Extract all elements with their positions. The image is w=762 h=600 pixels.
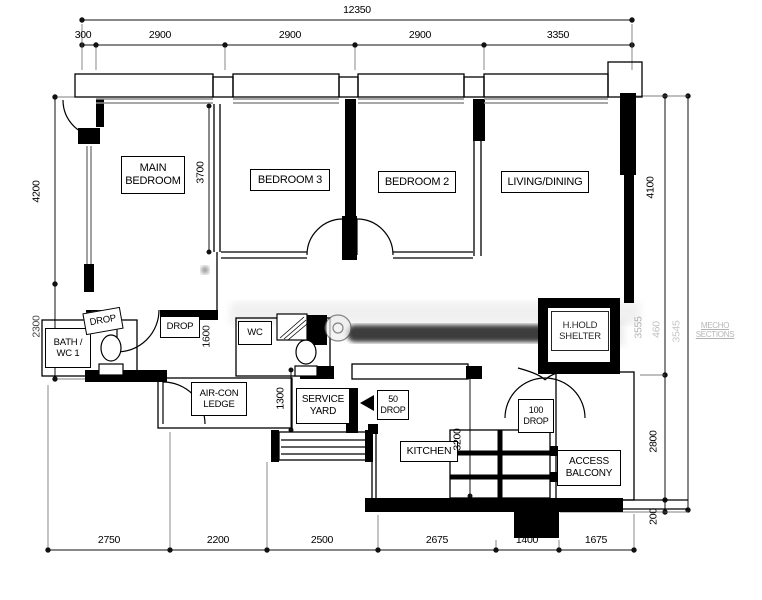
annotation-drop-hall: DROP	[160, 316, 200, 338]
dim-top-total: 12350	[335, 5, 379, 17]
room-label-aircon-ledge: AIR-CON LEDGE	[191, 382, 247, 416]
annotation-drop-shelter: 100 DROP	[518, 399, 554, 433]
washing-machine	[325, 315, 351, 341]
drop-arrow	[360, 395, 374, 411]
toilet-bath-wc1	[101, 335, 121, 361]
watermark-faded-460: 460	[652, 308, 665, 352]
room-label-bedroom3: BEDROOM 3	[250, 169, 330, 191]
floor-plan: MAIN BEDROOM BEDROOM 3 BEDROOM 2 LIVING/…	[0, 0, 762, 600]
dim-left-2300: 2300	[32, 305, 45, 349]
room-label-service-yard: SERVICE YARD	[296, 388, 350, 424]
dim-bottom-1400: 1400	[505, 535, 549, 547]
dim-interior-3200: 3200	[453, 418, 466, 462]
dim-bottom-1675: 1675	[574, 535, 618, 547]
room-label-main-bedroom: MAIN BEDROOM	[121, 156, 185, 194]
dim-bottom-2500: 2500	[300, 535, 344, 547]
room-label-wc2: WC	[238, 321, 272, 345]
dim-top-3350: 3350	[536, 30, 580, 42]
dim-interior-3700: 3700	[196, 151, 209, 195]
dim-right-200: 200	[649, 495, 662, 539]
watermark-faded-text: MECHO SECTIONS	[690, 322, 740, 340]
dim-right-2800: 2800	[649, 420, 662, 464]
dim-bottom-2675: 2675	[415, 535, 459, 547]
dim-top-300: 300	[67, 30, 99, 42]
dim-top-2900c: 2900	[398, 30, 442, 42]
dim-left-4200: 4200	[32, 170, 45, 214]
watermark-faded-3555: 3555	[634, 306, 647, 350]
room-label-bedroom2: BEDROOM 2	[378, 171, 456, 193]
room-label-bath-wc1: BATH / WC 1	[45, 328, 91, 368]
toilet-wc2	[296, 340, 316, 364]
dim-interior-1600: 1600	[202, 315, 215, 359]
dim-right-4100: 4100	[646, 166, 659, 210]
room-label-living-dining: LIVING/DINING	[501, 171, 589, 193]
dim-bottom-2750: 2750	[87, 535, 131, 547]
room-label-household-shelter: H.HOLD SHELTER	[551, 311, 609, 351]
room-label-kitchen: KITCHEN	[400, 441, 458, 462]
annotation-drop-service: 50 DROP	[377, 390, 409, 420]
dim-top-2900b: 2900	[268, 30, 312, 42]
dim-interior-1300: 1300	[276, 377, 289, 421]
dim-bottom-2200: 2200	[196, 535, 240, 547]
dim-top-2900a: 2900	[138, 30, 182, 42]
room-label-access-balcony: ACCESS BALCONY	[557, 450, 621, 486]
watermark-faded-3545: 3545	[672, 310, 685, 354]
